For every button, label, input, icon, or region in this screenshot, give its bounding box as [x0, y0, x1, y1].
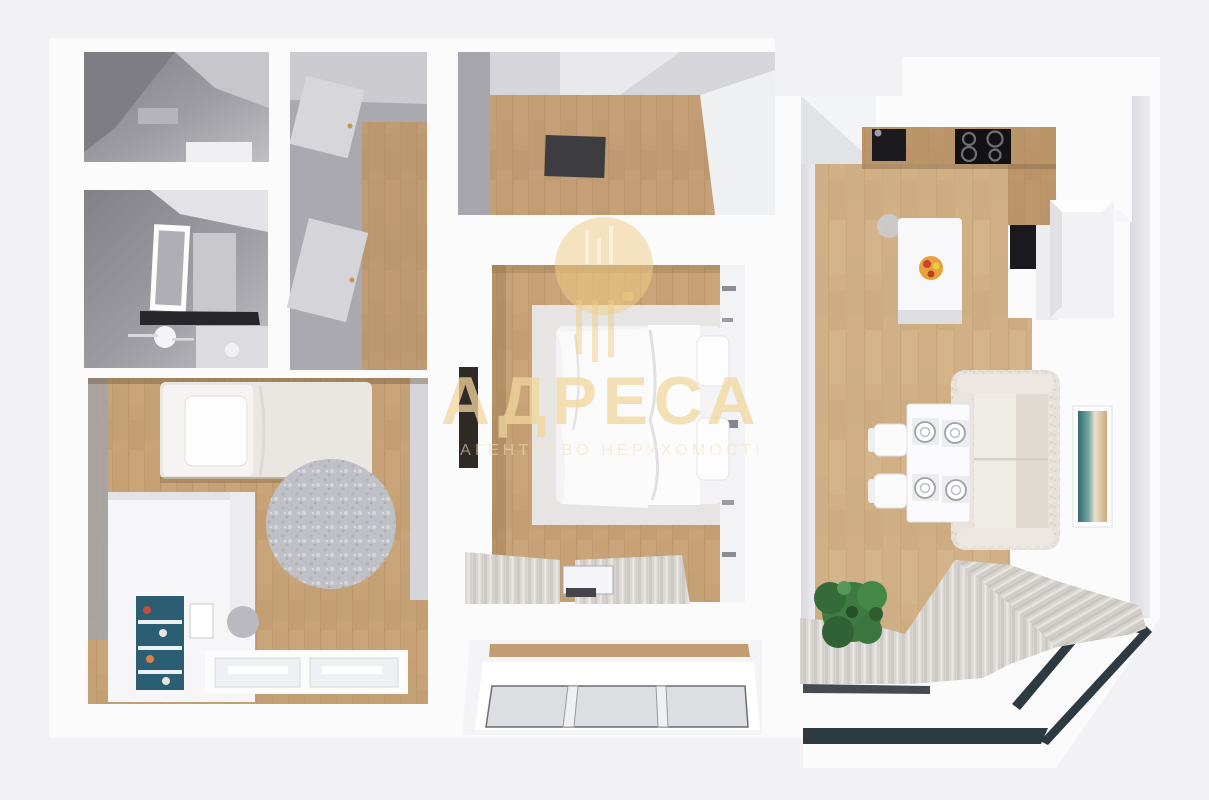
svg-text:АГЕНТСТВО НЕРУХОМОСТІ: АГЕНТСТВО НЕРУХОМОСТІ: [460, 442, 764, 459]
svg-text:АДРЕСА: АДРЕСА: [441, 363, 761, 439]
